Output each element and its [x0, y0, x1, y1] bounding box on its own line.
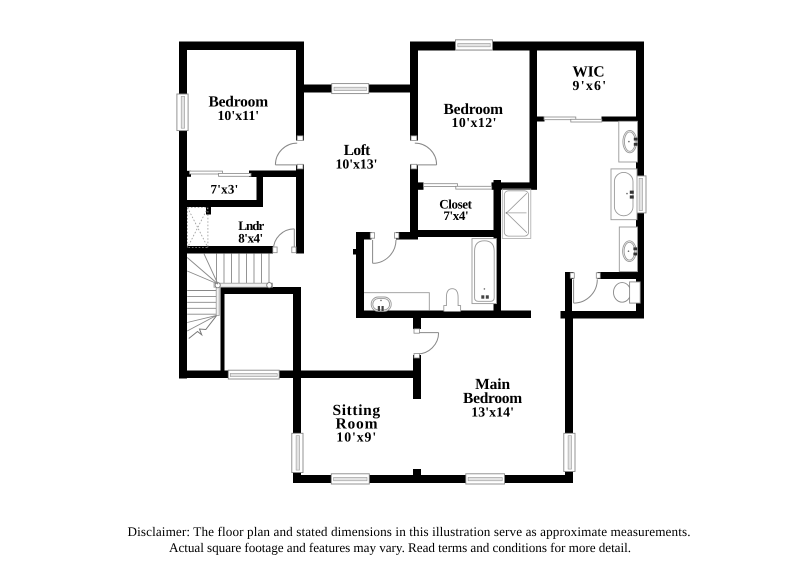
svg-text:Disclaimer: The floor plan and: Disclaimer: The floor plan and stated di… [128, 524, 691, 539]
svg-text:10'x11': 10'x11' [217, 108, 259, 123]
svg-text:10'x13': 10'x13' [336, 156, 378, 171]
svg-text:13'x14': 13'x14' [471, 404, 514, 419]
svg-text:10'x9': 10'x9' [336, 429, 376, 444]
svg-text:8'x4': 8'x4' [238, 230, 263, 245]
svg-text:7'x4': 7'x4' [443, 208, 468, 223]
svg-text:10'x12': 10'x12' [452, 115, 497, 130]
svg-text:Actual square footage and feat: Actual square footage and features may v… [169, 540, 631, 555]
svg-text:7'x3': 7'x3' [211, 182, 239, 197]
